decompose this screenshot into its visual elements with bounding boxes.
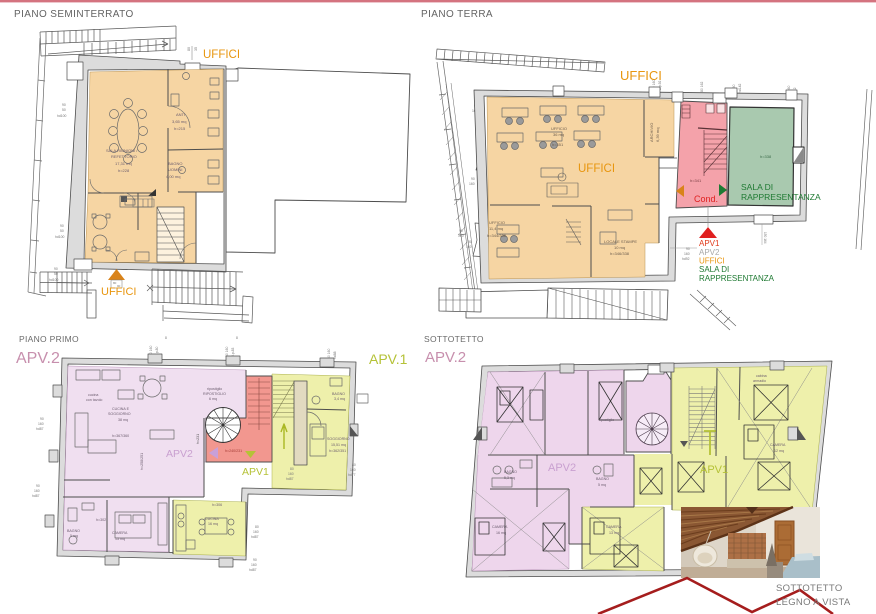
svg-text:h=338: h=338	[760, 154, 772, 159]
svg-text:160: 160	[466, 245, 472, 249]
svg-text:90: 90	[686, 247, 690, 251]
svg-text:PIANO SEMINTERRATO: PIANO SEMINTERRATO	[14, 9, 134, 20]
svg-text:5,3 mq: 5,3 mq	[504, 476, 515, 480]
svg-text:h=351: h=351	[552, 142, 564, 147]
svg-text:cabina: cabina	[756, 374, 767, 378]
svg-text:APV2: APV2	[548, 462, 576, 474]
svg-text:hd87: hd87	[251, 535, 259, 539]
svg-text:CAMERA: CAMERA	[770, 443, 786, 447]
svg-text:APV1: APV1	[700, 464, 728, 476]
svg-text:90: 90	[54, 267, 58, 271]
svg-text:160: 160	[253, 530, 259, 534]
svg-text:hd87: hd87	[36, 427, 44, 431]
svg-text:160: 160	[288, 472, 294, 476]
svg-text:h=306: h=306	[212, 503, 222, 507]
svg-text:16 mq: 16 mq	[496, 531, 506, 535]
svg-text:Cond.: Cond.	[694, 194, 718, 204]
svg-text:SALA DI: SALA DI	[741, 182, 773, 192]
svg-text:h=362/351: h=362/351	[329, 449, 346, 453]
svg-text:16 mq: 16 mq	[208, 522, 218, 526]
svg-text:SOGGIORNO: SOGGIORNO	[327, 437, 350, 441]
svg-text:ARCHIVIO: ARCHIVIO	[649, 123, 654, 142]
svg-text:RAPPRESENTANZA: RAPPRESENTANZA	[699, 274, 775, 283]
svg-text:h=215: h=215	[174, 126, 186, 131]
svg-text:35: 35	[194, 47, 198, 51]
svg-text:ripostiglio: ripostiglio	[207, 387, 222, 391]
svg-text:hd87: hd87	[32, 494, 40, 498]
svg-text:36 mq: 36 mq	[553, 132, 564, 137]
svg-text:SALA DI: SALA DI	[699, 265, 729, 274]
svg-text:APV.1: APV.1	[369, 351, 408, 367]
svg-text:80: 80	[187, 47, 191, 51]
svg-text:BAGNO: BAGNO	[596, 477, 609, 481]
svg-text:CAMERA: CAMERA	[606, 525, 622, 529]
svg-text:UFFICI: UFFICI	[101, 286, 136, 298]
svg-text:160: 160	[350, 468, 356, 472]
svg-text:50: 50	[62, 108, 66, 112]
svg-text:80: 80	[255, 525, 259, 529]
svg-text:BAGNO: BAGNO	[168, 161, 182, 166]
svg-text:160: 160	[684, 252, 690, 256]
svg-text:90: 90	[36, 484, 40, 488]
svg-text:h=344/336: h=344/336	[487, 233, 507, 238]
svg-text:UFFICI: UFFICI	[203, 49, 240, 61]
svg-text:UFFICIO: UFFICIO	[551, 126, 567, 131]
svg-text:hd87: hd87	[249, 568, 257, 572]
svg-text:LOCALE STAMPE: LOCALE STAMPE	[604, 239, 637, 244]
svg-text:hd100: hd100	[57, 114, 67, 118]
svg-text:RIPOSTIGLIO: RIPOSTIGLIO	[203, 392, 226, 396]
svg-text:h=228: h=228	[118, 168, 130, 173]
svg-text:13 mq: 13 mq	[609, 531, 619, 535]
svg-text:h=258/251: h=258/251	[140, 453, 144, 470]
svg-text:6,39 mq: 6,39 mq	[655, 128, 660, 142]
svg-text:RAPPRESENTANZA: RAPPRESENTANZA	[741, 192, 821, 202]
svg-text:REFETTORIO: REFETTORIO	[111, 154, 137, 159]
svg-text:80 162: 80 162	[700, 82, 704, 92]
svg-text:90: 90	[60, 224, 64, 228]
svg-text:CAMERA: CAMERA	[112, 531, 128, 535]
svg-text:4,00 mq: 4,00 mq	[166, 174, 180, 179]
svg-text:hd92: hd92	[682, 257, 690, 261]
svg-text:90: 90	[468, 240, 472, 244]
svg-text:11,4 mq: 11,4 mq	[489, 226, 503, 231]
svg-text:ripostiglio: ripostiglio	[599, 418, 614, 422]
svg-text:80: 80	[290, 467, 294, 471]
svg-text:160: 160	[469, 182, 475, 186]
svg-text:PIANO TERRA: PIANO TERRA	[421, 9, 493, 20]
svg-text:5 mq: 5 mq	[598, 483, 606, 487]
svg-text:80 160: 80 160	[225, 347, 229, 357]
svg-text:5 mq: 5 mq	[70, 534, 78, 538]
svg-text:APV1: APV1	[242, 466, 269, 478]
svg-text:80 160: 80 160	[327, 349, 331, 359]
svg-text:160: 160	[251, 563, 257, 567]
svg-text:CUCINA E: CUCINA E	[112, 407, 130, 411]
svg-text:SOGGIORNO: SOGGIORNO	[108, 412, 131, 416]
svg-text:hd142: hd142	[738, 83, 742, 93]
svg-text:15,51 mq: 15,51 mq	[331, 443, 346, 447]
svg-text:h=231: h=231	[196, 434, 200, 444]
svg-text:BAGNO: BAGNO	[504, 470, 517, 474]
svg-text:hd87: hd87	[286, 477, 294, 481]
svg-text:160: 160	[458, 234, 464, 238]
svg-text:90: 90	[459, 229, 463, 233]
svg-text:160: 160	[38, 422, 44, 426]
svg-text:UFFICIO: UFFICIO	[489, 220, 505, 225]
svg-text:h=367/360: h=367/360	[112, 434, 129, 438]
svg-text:UOMINI: UOMINI	[168, 167, 182, 172]
svg-text:armadio: armadio	[753, 379, 766, 383]
svg-text:APV2: APV2	[166, 448, 193, 460]
svg-text:38 mq: 38 mq	[118, 418, 128, 422]
svg-text:SOTTOTETTO: SOTTOTETTO	[776, 583, 843, 594]
svg-text:d.p.83: d.p.83	[231, 347, 235, 357]
svg-text:8: 8	[236, 336, 238, 340]
svg-text:LEGNO A VISTA: LEGNO A VISTA	[776, 597, 851, 608]
svg-text:17,31 mq: 17,31 mq	[115, 161, 132, 166]
svg-text:13 mq: 13 mq	[115, 537, 125, 541]
svg-text:hd77: hd77	[348, 473, 356, 477]
svg-text:10 mq: 10 mq	[614, 245, 625, 250]
svg-text:90: 90	[471, 177, 475, 181]
svg-text:3,65 mq: 3,65 mq	[172, 119, 186, 124]
svg-text:h=302: h=302	[96, 518, 106, 522]
svg-text:SALA RIUNIONI /: SALA RIUNIONI /	[106, 148, 138, 153]
svg-text:SOTTOTETTO: SOTTOTETTO	[424, 334, 484, 344]
svg-text:ANTI: ANTI	[176, 112, 185, 117]
svg-text:cucina: cucina	[88, 393, 98, 397]
svg-text:160: 160	[34, 489, 40, 493]
svg-text:PIANO PRIMO: PIANO PRIMO	[19, 334, 79, 344]
svg-text:150 164: 150 164	[763, 232, 767, 244]
svg-text:hd100: hd100	[55, 235, 65, 239]
svg-text:3,4 mq: 3,4 mq	[334, 397, 345, 401]
svg-text:BAGNO: BAGNO	[67, 529, 80, 533]
svg-text:8: 8	[165, 336, 167, 340]
svg-text:80: 80	[352, 463, 356, 467]
svg-text:h=346/338: h=346/338	[610, 251, 630, 256]
svg-text:APV.2: APV.2	[16, 350, 60, 367]
svg-text:APV1: APV1	[699, 239, 720, 248]
svg-text:6 mq: 6 mq	[209, 397, 217, 401]
svg-text:con tavolo: con tavolo	[86, 398, 102, 402]
svg-text:BAGNO: BAGNO	[332, 392, 345, 396]
svg-text:90: 90	[40, 417, 44, 421]
svg-text:CUCINA: CUCINA	[205, 517, 219, 521]
svg-text:UFFICI: UFFICI	[578, 163, 615, 175]
svg-text:h=240/231: h=240/231	[225, 449, 242, 453]
svg-text:12 mq: 12 mq	[774, 449, 784, 453]
svg-text:90: 90	[62, 103, 66, 107]
svg-text:APV.2: APV.2	[425, 349, 466, 366]
svg-text:h=341: h=341	[690, 178, 702, 183]
svg-text:50: 50	[60, 229, 64, 233]
svg-text:CAMERA: CAMERA	[492, 525, 508, 529]
svg-text:90: 90	[253, 558, 257, 562]
